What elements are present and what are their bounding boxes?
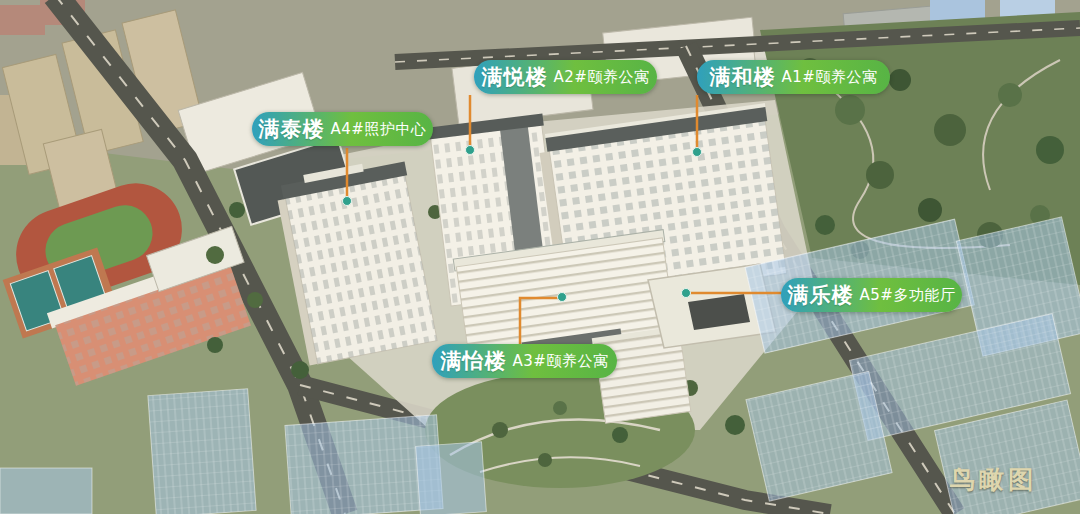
building-label-a2-manyue: 满悦楼 A2#颐养公寓: [474, 60, 657, 94]
leader-dot-a4: [343, 197, 352, 206]
leader-dot-a3: [558, 293, 567, 302]
building-label-a3-manyi: 满怡楼 A3#颐养公寓: [432, 344, 617, 378]
building-label-a4-mantai: 满泰楼 A4#照护中心: [252, 112, 433, 146]
building-unit: A3#颐养公寓: [513, 352, 609, 371]
building-unit: A2#颐养公寓: [554, 68, 650, 87]
leader-dot-a2: [466, 146, 475, 155]
building-name: 满乐楼: [788, 281, 854, 309]
birdseye-rendering: 满泰楼 A4#照护中心 满悦楼 A2#颐养公寓 满和楼 A1#颐养公寓 满乐楼 …: [0, 0, 1080, 514]
building-unit: A4#照护中心: [331, 120, 427, 139]
building-label-a5-manle: 满乐楼 A5#多功能厅: [781, 278, 962, 312]
building-name: 满悦楼: [482, 63, 548, 91]
building-label-a1-manhe: 满和楼 A1#颐养公寓: [697, 60, 890, 94]
leader-dot-a1: [693, 148, 702, 157]
building-name: 满怡楼: [441, 347, 507, 375]
building-name: 满泰楼: [259, 115, 325, 143]
leader-dot-a5: [682, 289, 691, 298]
building-name: 满和楼: [710, 63, 776, 91]
watermark-birdseye: 鸟瞰图: [950, 463, 1037, 496]
building-unit: A1#颐养公寓: [782, 68, 878, 87]
building-unit: A5#多功能厅: [860, 286, 956, 305]
